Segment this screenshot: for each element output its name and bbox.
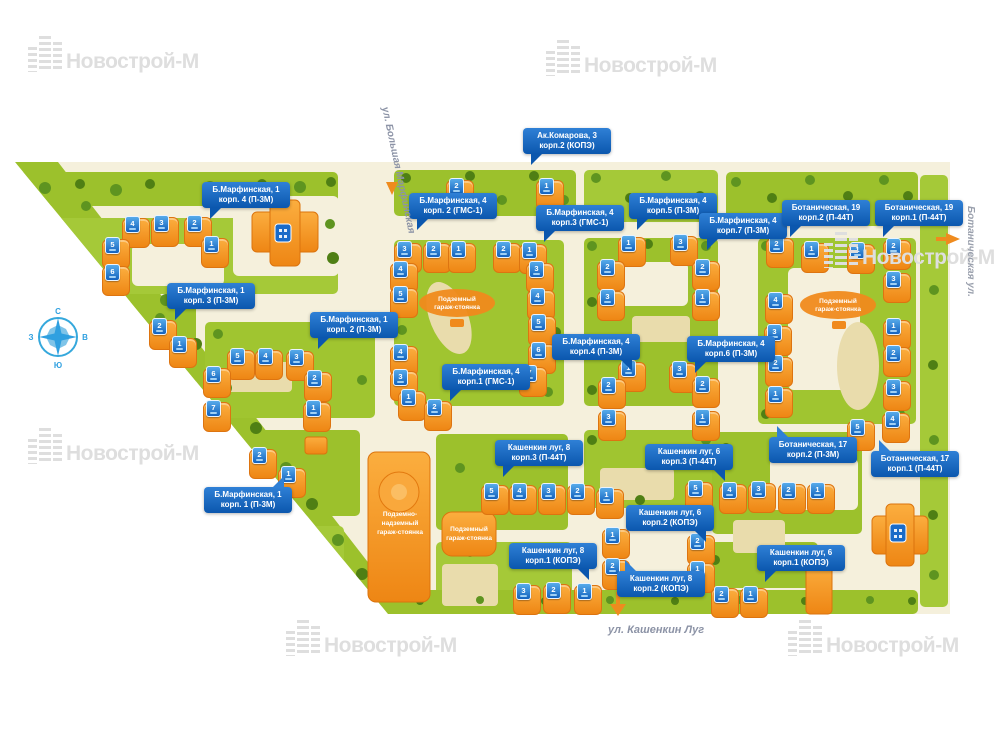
building-label-line2: корп. 1 (П-3М) xyxy=(206,500,290,510)
building-label-kashlug6-2[interactable]: Кашенкин луг, 6корп.2 (КОПЭ) xyxy=(626,505,714,531)
section-badge-1[interactable]: 1 xyxy=(743,586,758,603)
building-label-line1: Б.Марфинская, 1 xyxy=(169,286,253,296)
section-badge-1[interactable]: 1 xyxy=(621,235,636,252)
section-badge-2[interactable]: 2 xyxy=(781,482,796,499)
building-label-bmarf4-2[interactable]: Б.Марфинская, 4корп. 2 (ГМС-1) xyxy=(409,193,497,219)
building-label-bmarf1-3[interactable]: Б.Марфинская, 1корп. 3 (П-3М) xyxy=(167,283,255,309)
section-badge-4[interactable]: 4 xyxy=(768,292,783,309)
building-label-kashlug8-3[interactable]: Кашенкин луг, 8корп.3 (П-44Т) xyxy=(495,440,583,466)
brand-logo-icon xyxy=(788,620,822,656)
building-label-line2: корп.1 (П-44Т) xyxy=(877,213,961,223)
section-badge-1[interactable]: 1 xyxy=(401,389,416,406)
building-label-line1: Б.Марфинская, 4 xyxy=(701,216,785,226)
section-badge-2[interactable]: 2 xyxy=(600,259,615,276)
building-label-line2: корп. 3 (П-3М) xyxy=(169,296,253,306)
building-label-botan19-2[interactable]: Ботаническая, 19корп.2 (П-44Т) xyxy=(782,200,870,226)
building-label-akkomarova3-2[interactable]: Ак.Комарова, 3корп.2 (КОПЭ) xyxy=(523,128,611,154)
site-plan-page: Подземно- надземный гараж-стоянка Подзем… xyxy=(0,0,1000,750)
section-badge-4[interactable]: 4 xyxy=(722,482,737,499)
building-label-botan17-1[interactable]: Ботаническая, 17корп.1 (П-44Т) xyxy=(871,451,959,477)
section-badge-6[interactable]: 6 xyxy=(105,264,120,281)
section-badge-3[interactable]: 3 xyxy=(751,481,766,498)
section-badge-2[interactable]: 2 xyxy=(187,215,202,232)
section-badge-5[interactable]: 5 xyxy=(393,286,408,303)
section-badge-2[interactable]: 2 xyxy=(427,399,442,416)
callout-tail xyxy=(637,218,649,230)
brand-watermark: Новострой-М xyxy=(28,36,199,72)
section-badge-1[interactable]: 1 xyxy=(306,400,321,417)
callout-tail xyxy=(210,207,222,219)
building-label-line2: корп.2 (П-44Т) xyxy=(784,213,868,223)
callout-tail xyxy=(417,218,429,230)
building-label-line1: Б.Марфинская, 4 xyxy=(538,208,622,218)
section-badge-2[interactable]: 2 xyxy=(426,241,441,258)
section-badge-1[interactable]: 1 xyxy=(768,386,783,403)
callout-tail xyxy=(790,225,802,237)
building-label-line2: корп.6 (П-3М) xyxy=(689,349,773,359)
brand-watermark: Новострой-М xyxy=(546,40,717,76)
callout-tail xyxy=(531,153,543,165)
callout-tail xyxy=(883,225,895,237)
building-label-line1: Кашенкин луг, 6 xyxy=(759,548,843,558)
section-badge-5[interactable]: 5 xyxy=(688,480,703,497)
brand-logo-icon xyxy=(28,36,62,72)
building-label-bmarf4-3[interactable]: Б.Марфинская, 4корп.3 (ГМС-1) xyxy=(536,205,624,231)
section-badge-2[interactable]: 2 xyxy=(695,376,710,393)
building-label-line2: корп.1 (КОПЭ) xyxy=(511,556,595,566)
building-label-line1: Ботаническая, 19 xyxy=(784,203,868,213)
section-badge-4[interactable]: 4 xyxy=(530,288,545,305)
building-label-bmarf4-1[interactable]: Б.Марфинская, 4корп.1 (ГМС-1) xyxy=(442,364,530,390)
section-badge-1[interactable]: 1 xyxy=(204,236,219,253)
brand-watermark: Новострой-М xyxy=(286,620,457,656)
building-label-line2: корп.3 (ГМС-1) xyxy=(538,218,622,228)
building-label-kashlug8-2[interactable]: Кашенкин луг, 8корп.2 (КОПЭ) xyxy=(617,571,705,597)
section-badge-4[interactable]: 4 xyxy=(393,344,408,361)
building-label-bmarf1-4[interactable]: Б.Марфинская, 1корп. 4 (П-3М) xyxy=(202,182,290,208)
section-badge-7[interactable]: 7 xyxy=(206,400,221,417)
section-badge-2[interactable]: 2 xyxy=(695,259,710,276)
section-badge-1[interactable]: 1 xyxy=(539,178,554,195)
building-label-line2: корп.7 (П-3М) xyxy=(701,226,785,236)
building-label-botan17-2[interactable]: Ботаническая, 17корп.2 (П-3М) xyxy=(769,437,857,463)
section-badge-3[interactable]: 3 xyxy=(672,361,687,378)
building-label-line1: Б.Марфинская, 1 xyxy=(204,185,288,195)
callout-tail xyxy=(625,560,637,572)
building-label-line2: корп.2 (КОПЭ) xyxy=(619,584,703,594)
section-badge-1[interactable]: 1 xyxy=(695,409,710,426)
section-badge-5[interactable]: 5 xyxy=(105,237,120,254)
section-badge-3[interactable]: 3 xyxy=(601,409,616,426)
building-label-line1: Кашенкин луг, 8 xyxy=(619,574,703,584)
brand-watermark: Новострой-М xyxy=(788,620,959,656)
callout-tail xyxy=(544,230,556,242)
callout-tail xyxy=(777,426,789,438)
section-badge-2[interactable]: 2 xyxy=(252,447,267,464)
section-badge-5[interactable]: 5 xyxy=(531,314,546,331)
section-badge-1[interactable]: 1 xyxy=(451,241,466,258)
section-badge-3[interactable]: 3 xyxy=(600,289,615,306)
building-label-line2: корп.2 (П-3М) xyxy=(771,450,855,460)
section-badge-1[interactable]: 1 xyxy=(605,527,620,544)
callout-tail xyxy=(879,440,891,452)
section-badge-1[interactable]: 1 xyxy=(172,336,187,353)
section-badge-2[interactable]: 2 xyxy=(886,238,901,255)
section-badge-4[interactable]: 4 xyxy=(512,483,527,500)
building-label-line1: Б.Марфинская, 4 xyxy=(444,367,528,377)
building-label-botan19-1[interactable]: Ботаническая, 19корп.1 (П-44Т) xyxy=(875,200,963,226)
building-label-line1: Кашенкин луг, 8 xyxy=(511,546,595,556)
section-badge-4[interactable]: 4 xyxy=(885,411,900,428)
building-label-line1: Кашенкин луг, 6 xyxy=(647,447,731,457)
section-badge-3[interactable]: 3 xyxy=(393,369,408,386)
building-label-kashlug8-1[interactable]: Кашенкин луг, 8корп.1 (КОПЭ) xyxy=(509,543,597,569)
section-badge-5[interactable]: 5 xyxy=(850,419,865,436)
brand-logo-icon xyxy=(28,428,62,464)
building-label-line1: Б.Марфинская, 1 xyxy=(206,490,290,500)
callout-tail xyxy=(175,308,187,320)
callout-tail xyxy=(707,238,719,250)
callout-tail xyxy=(695,361,707,373)
section-badge-2[interactable]: 2 xyxy=(496,241,511,258)
callout-tail xyxy=(713,469,725,481)
building-label-line2: корп. 2 (П-3М) xyxy=(312,325,396,335)
section-badge-5[interactable]: 5 xyxy=(484,483,499,500)
building-label-kashlug6-3[interactable]: Кашенкин луг, 6корп.3 (П-44Т) xyxy=(645,444,733,470)
building-label-line1: Ботаническая, 17 xyxy=(771,440,855,450)
callout-tail xyxy=(272,476,284,488)
section-badge-2[interactable]: 2 xyxy=(307,370,322,387)
section-badge-1[interactable]: 1 xyxy=(577,583,592,600)
section-badge-3[interactable]: 3 xyxy=(529,261,544,278)
callout-tail xyxy=(318,337,330,349)
section-badge-1[interactable]: 1 xyxy=(850,242,865,259)
section-badge-6[interactable]: 6 xyxy=(531,342,546,359)
callout-tail xyxy=(765,570,777,582)
section-badge-3[interactable]: 3 xyxy=(289,349,304,366)
building-label-line1: Б.Марфинская, 4 xyxy=(411,196,495,206)
section-badge-2[interactable]: 2 xyxy=(886,345,901,362)
section-badge-4[interactable]: 4 xyxy=(393,261,408,278)
section-badge-3[interactable]: 3 xyxy=(886,271,901,288)
section-badge-2[interactable]: 2 xyxy=(570,483,585,500)
section-badge-4[interactable]: 4 xyxy=(258,348,273,365)
building-label-line1: Кашенкин луг, 8 xyxy=(497,443,581,453)
section-badge-3[interactable]: 3 xyxy=(541,483,556,500)
section-badge-2[interactable]: 2 xyxy=(714,586,729,603)
callout-tail xyxy=(450,389,462,401)
street-kashenkin-lug: ул. Кашенкин Луг xyxy=(608,624,704,636)
section-badge-4[interactable]: 4 xyxy=(125,216,140,233)
callout-tail xyxy=(694,530,706,542)
section-badge-1[interactable]: 1 xyxy=(810,482,825,499)
building-label-line1: Ботаническая, 17 xyxy=(873,454,957,464)
building-label-line2: корп.2 (КОПЭ) xyxy=(628,518,712,528)
building-label-bmarf4-6[interactable]: Б.Марфинская, 4корп.6 (П-3М) xyxy=(687,336,775,362)
section-badge-2[interactable]: 2 xyxy=(546,582,561,599)
callout-tail xyxy=(620,359,632,371)
section-badge-1[interactable]: 1 xyxy=(522,242,537,259)
section-badge-1[interactable]: 1 xyxy=(695,289,710,306)
building-label-bmarf1-2[interactable]: Б.Марфинская, 1корп. 2 (П-3М) xyxy=(310,312,398,338)
section-badge-3[interactable]: 3 xyxy=(516,583,531,600)
building-label-line1: Б.Марфинская, 4 xyxy=(631,196,715,206)
building-label-line2: корп.3 (П-44Т) xyxy=(497,453,581,463)
section-badge-2[interactable]: 2 xyxy=(601,377,616,394)
section-badge-3[interactable]: 3 xyxy=(886,379,901,396)
building-label-line1: Ботаническая, 19 xyxy=(877,203,961,213)
building-label-line2: корп.1 (ГМС-1) xyxy=(444,377,528,387)
section-badge-5[interactable]: 5 xyxy=(230,348,245,365)
brand-watermark: Новострой-М xyxy=(28,428,199,464)
building-label-bmarf1-1[interactable]: Б.Марфинская, 1корп. 1 (П-3М) xyxy=(204,487,292,513)
section-badge-6[interactable]: 6 xyxy=(206,366,221,383)
building-label-kashlug6-1[interactable]: Кашенкин луг, 6корп.1 (КОПЭ) xyxy=(757,545,845,571)
building-label-bmarf4-7[interactable]: Б.Марфинская, 4корп.7 (П-3М) xyxy=(699,213,787,239)
building-label-bmarf4-4[interactable]: Б.Марфинская, 4корп.4 (П-3М) xyxy=(552,334,640,360)
section-badge-2[interactable]: 2 xyxy=(152,318,167,335)
section-badge-3[interactable]: 3 xyxy=(154,215,169,232)
building-label-line2: корп.1 (П-44Т) xyxy=(873,464,957,474)
building-label-line1: Б.Марфинская, 1 xyxy=(312,315,396,325)
building-label-line1: Б.Марфинская, 4 xyxy=(554,337,638,347)
building-label-line1: Б.Марфинская, 4 xyxy=(689,339,773,349)
building-label-line2: корп.2 (КОПЭ) xyxy=(525,141,609,151)
building-label-line1: Ак.Комарова, 3 xyxy=(525,131,609,141)
section-badge-3[interactable]: 3 xyxy=(397,241,412,258)
building-label-line2: корп.4 (П-3М) xyxy=(554,347,638,357)
brand-logo-icon xyxy=(546,40,580,76)
street-botanicheskaya: Ботаническая ул. xyxy=(965,206,976,297)
building-label-line2: корп.3 (П-44Т) xyxy=(647,457,731,467)
section-badge-3[interactable]: 3 xyxy=(673,234,688,251)
section-badge-1[interactable]: 1 xyxy=(599,487,614,504)
building-label-line2: корп. 4 (П-3М) xyxy=(204,195,288,205)
callout-tail xyxy=(577,568,589,580)
section-badge-1[interactable]: 1 xyxy=(804,241,819,258)
building-label-line2: корп.1 (КОПЭ) xyxy=(759,558,843,568)
section-badge-1[interactable]: 1 xyxy=(886,318,901,335)
brand-logo-icon xyxy=(286,620,320,656)
building-label-line1: Кашенкин луг, 6 xyxy=(628,508,712,518)
callout-tail xyxy=(503,465,515,477)
building-label-line2: корп. 2 (ГМС-1) xyxy=(411,206,495,216)
